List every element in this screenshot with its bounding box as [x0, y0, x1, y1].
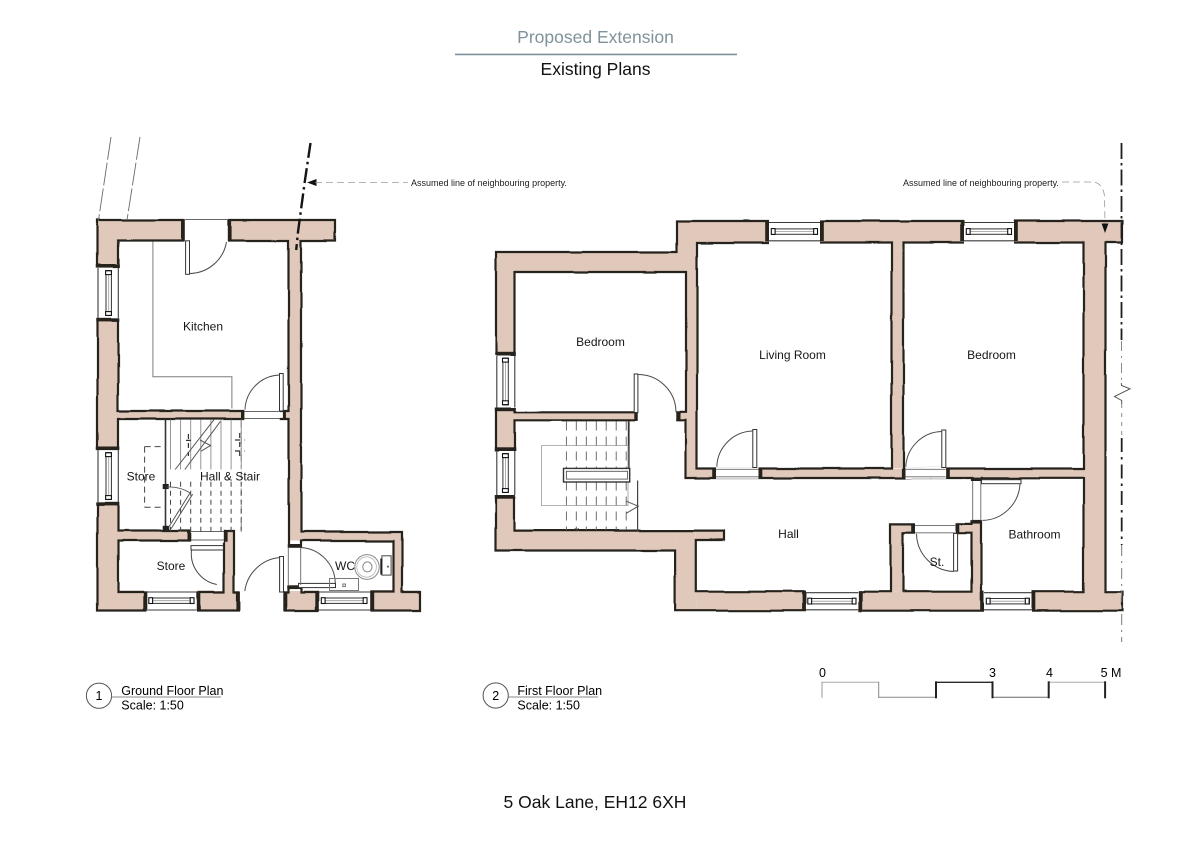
svg-text:Bedroom: Bedroom [967, 348, 1016, 362]
svg-text:Store: Store [127, 470, 156, 484]
svg-text:First Floor Plan: First Floor Plan [517, 684, 602, 698]
svg-text:Assumed line of neighbouring p: Assumed line of neighbouring property. [411, 178, 567, 188]
svg-text:1: 1 [96, 689, 103, 703]
svg-text:Hall: Hall [778, 527, 799, 541]
svg-text:2: 2 [492, 689, 499, 703]
svg-text:Existing Plans: Existing Plans [541, 59, 651, 79]
svg-text:Kitchen: Kitchen [183, 320, 223, 334]
svg-text:5 M: 5 M [1101, 666, 1122, 680]
svg-text:Scale: 1:50: Scale: 1:50 [121, 699, 184, 713]
svg-text:WC: WC [335, 559, 355, 573]
svg-text:St.: St. [930, 555, 945, 569]
svg-text:Scale: 1:50: Scale: 1:50 [517, 699, 580, 713]
svg-text:5 Oak Lane, EH12 6XH: 5 Oak Lane, EH12 6XH [504, 792, 687, 812]
svg-text:Bathroom: Bathroom [1008, 528, 1060, 542]
svg-text:Hall & Stair: Hall & Stair [200, 470, 260, 484]
svg-text:4: 4 [1046, 666, 1053, 680]
svg-text:Living Room: Living Room [759, 348, 826, 362]
svg-text:Proposed Extension: Proposed Extension [517, 27, 674, 47]
svg-text:Store: Store [157, 559, 186, 573]
svg-text:Bedroom: Bedroom [576, 335, 625, 349]
svg-text:Assumed line of neighbouring p: Assumed line of neighbouring property. [903, 178, 1059, 188]
svg-text:Ground Floor Plan: Ground Floor Plan [121, 684, 223, 698]
svg-text:3: 3 [989, 666, 996, 680]
svg-text:0: 0 [819, 666, 826, 680]
